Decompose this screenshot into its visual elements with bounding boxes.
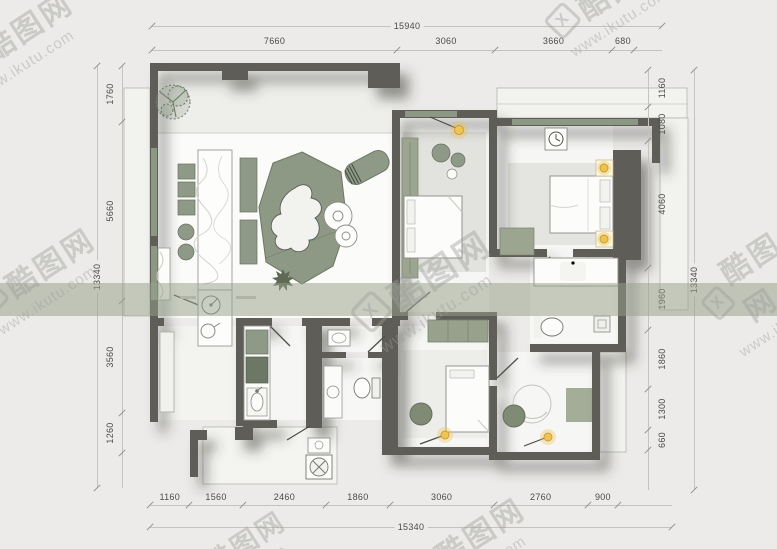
mini-balcony-floor [566,388,592,422]
vanity-2 [324,366,342,418]
dim-label: 5660 [105,201,115,222]
plant-icon [156,85,190,119]
dim-label: 1560 [205,492,226,502]
vanity-sink [534,258,618,286]
dim-line [152,50,662,51]
dim-label: 900 [595,492,611,502]
bed-master [550,176,613,233]
dim-label: 1260 [105,423,115,444]
kitchen-sink [247,387,267,416]
dim-label: 680 [615,36,631,46]
dim-label: 660 [657,432,667,448]
utility-fixtures [306,438,332,479]
kitchen-cabinet [246,330,268,354]
wardrobe [428,320,488,342]
toilet-icon [534,316,563,338]
kettle-icon [201,324,215,338]
dim-label: 3560 [105,346,115,367]
dim-label: 1860 [657,349,667,370]
dim-line [150,505,672,506]
beanbag [503,405,525,427]
dim-label: 2460 [274,492,295,502]
dim-label: 4060 [657,194,667,215]
washer-icon [306,455,332,479]
dim-label: 1160 [159,492,180,502]
dim-label: 1860 [347,492,368,502]
dim-label: 1160 [657,78,667,99]
dim-label: 7660 [264,36,285,46]
dim-label: 3060 [431,492,452,502]
watermark-band [0,283,777,316]
laundry-sink [308,438,330,453]
shoe-cabinet [160,332,174,412]
dim-label: 15940 [391,21,424,31]
shower-drain-icon [594,316,610,332]
bed-kids [446,366,489,432]
kitchen-fixtures [244,326,270,420]
toilet-2-icon [354,378,380,398]
dim-label: 1300 [657,398,667,419]
dim-label: 1760 [105,83,115,104]
wall-clock-icon [545,128,567,150]
wall-sink-icon [328,330,350,346]
nightstand-lamp [596,160,613,176]
dim-label: 2760 [530,492,551,502]
bench-seats [240,158,257,264]
dim-label: 1080 [657,113,667,134]
kitchen-cabinet-dark [246,357,268,383]
dim-label: 15340 [395,522,428,532]
bed [404,196,462,258]
balcony-floor [158,71,392,133]
dim-line [122,66,123,488]
closet [500,228,534,255]
beanbag [410,403,432,425]
nightstand-lamp [596,231,613,247]
floorplan-canvas: 7660306036606801594011601560246018603060… [0,0,777,549]
dim-label: 3060 [435,36,456,46]
dim-label: 3660 [543,36,564,46]
